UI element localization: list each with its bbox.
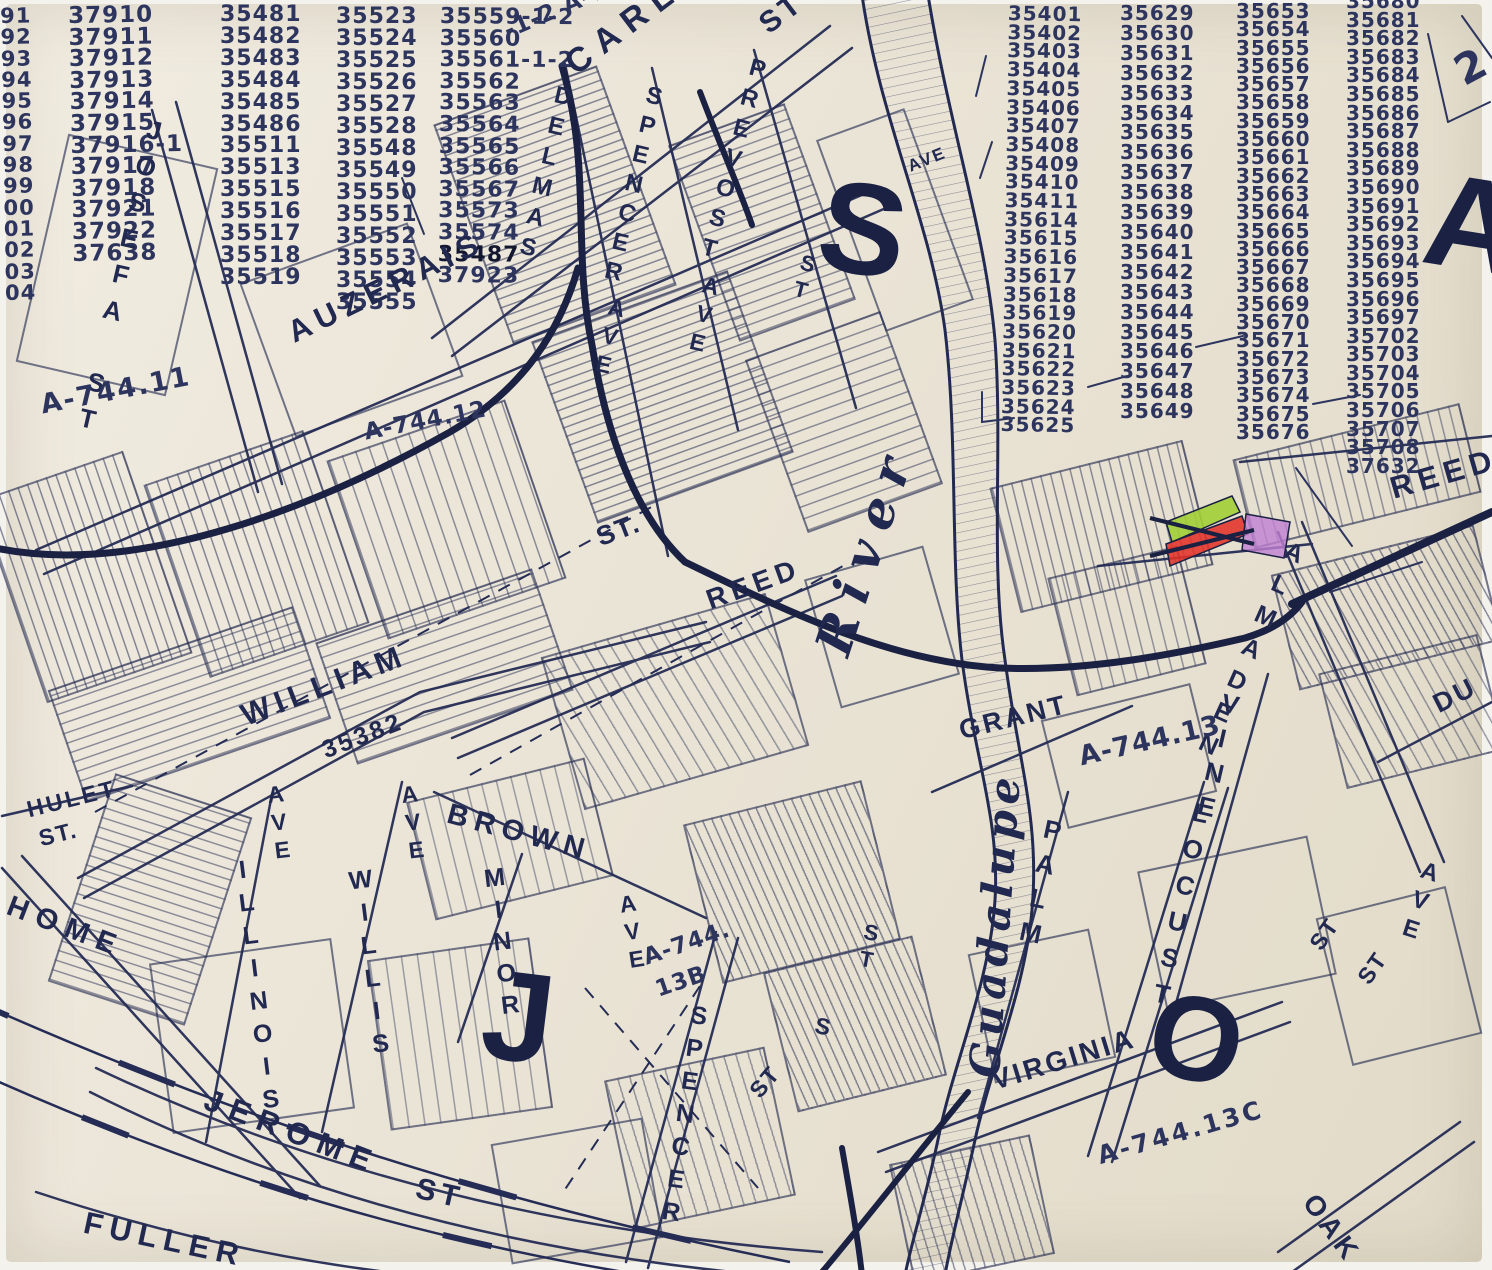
survey-number-column-9: 3568035681356823568335684356853568635687… (1346, 0, 1421, 475)
survey-number: 35551 (336, 204, 418, 226)
survey-number: 35483 (220, 48, 302, 70)
survey-number: 35486 (220, 114, 302, 136)
survey-number: 35552 (336, 226, 418, 248)
survey-number: 35676 (1236, 423, 1311, 441)
map-canvas: 9192939495969798990001020304 37910379113… (0, 0, 1492, 1270)
survey-number: 02 (4, 240, 36, 262)
survey-number: 35518 (220, 245, 302, 267)
survey-number: 35481 (220, 4, 302, 26)
survey-number: 35524 (336, 28, 418, 50)
survey-number: 35649 (1120, 402, 1195, 422)
survey-number: 35485 (220, 92, 302, 114)
survey-number: 35519 (220, 267, 302, 289)
survey-number: 35548 (336, 138, 418, 160)
survey-number: 92 (0, 27, 32, 49)
survey-number: 35517 (220, 223, 302, 245)
survey-number: 35526 (336, 72, 418, 94)
survey-number: 35525 (336, 50, 418, 72)
survey-number: 35549 (336, 160, 418, 182)
survey-number: 35527 (336, 94, 418, 116)
survey-number-column-1: 9192939495969798990001020304 (0, 5, 36, 304)
survey-number: 35550 (336, 182, 418, 204)
survey-number-column-8: 3565335654356553565635657356583565935660… (1236, 2, 1311, 441)
survey-number: 35513 (220, 157, 302, 179)
survey-number-column-6: 3540135402354033540435405354063540735408… (1000, 4, 1082, 435)
survey-number: 35515 (220, 179, 302, 201)
survey-number: 35625 (1000, 415, 1075, 435)
survey-number: 35482 (220, 26, 302, 48)
colored-parcels (1150, 496, 1290, 566)
survey-number: 99 (3, 176, 35, 198)
survey-number-column-3: 3548135482354833548435485354863551135513… (220, 4, 302, 289)
survey-number: 35516 (220, 201, 302, 223)
survey-number-column-7: 3562935630356313563235633356343563535636… (1120, 4, 1195, 422)
survey-number: 35511 (220, 135, 302, 157)
survey-number: 35484 (220, 70, 302, 92)
survey-number: 04 (5, 282, 37, 304)
survey-number: 35523 (336, 6, 418, 28)
survey-number: 35528 (336, 116, 418, 138)
survey-number: 96 (2, 112, 34, 134)
